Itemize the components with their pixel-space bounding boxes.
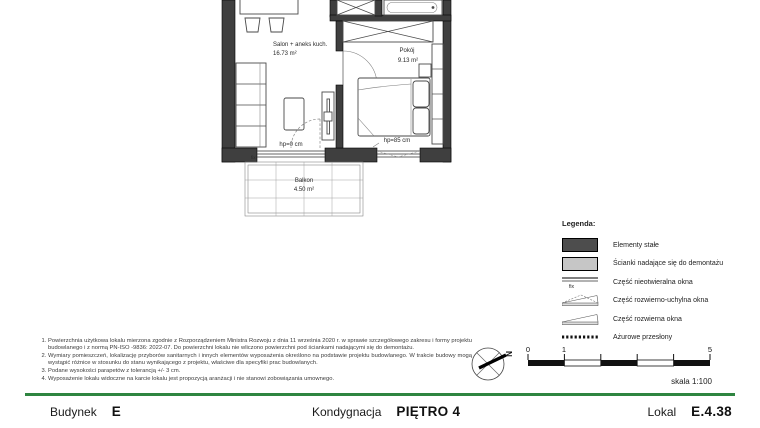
wall-top-divider-1 [330,0,337,17]
note-item: Wyposażenie lokalu widoczne na karcie lo… [48,376,472,383]
pillow [413,108,429,134]
north-arrow: N [463,340,523,390]
turn-window-icon [562,312,600,327]
closet-right [432,44,443,144]
bathtub [384,0,442,15]
wall-interior-lower [336,85,343,148]
balkon-label: Balkon [295,178,313,184]
legend-title: Legenda: [562,219,757,228]
fix-window-label: fix [251,155,256,160]
balkon-area: 4.50 m² [294,187,314,193]
notes-list: Powierzchnia użytkowa lokalu mierzona zg… [36,338,472,384]
pillow [413,81,429,107]
svg-text:fix: fix [569,284,575,290]
building-label: Budynek [50,405,97,419]
solid-wall-swatch [562,238,598,252]
top-fixtures [337,0,442,15]
scale-tick-5: 5 [708,345,712,354]
hp-bedroom-label: hp=85 cm [384,138,411,144]
floor-plan-drawing: Salon + aneks kuch. 16.73 m² Pokój 9.13 … [210,0,480,230]
unit-label: Lokal [647,405,676,419]
legend-item-fixed-window: fix Część nieotwieralna okna [562,273,757,292]
note-item: Wymiary pomieszczeń, lokalizację przybor… [48,353,472,367]
wardrobe-large [343,21,433,42]
scale-caption: skala 1:100 [671,377,712,386]
note-item: Podane wysokości parapetów z tolerancją … [48,368,472,375]
salon-label: Salon + aneks kuch. [273,42,328,48]
wall-top-horizontal [330,15,451,21]
bed [358,78,430,136]
tilt-turn-window-icon [562,293,600,308]
building-value: E [112,404,121,419]
tv-stand [322,92,334,140]
wall-interior-upper [336,21,343,51]
coffee-table [284,98,304,130]
pokoj-label: Pokój [399,48,414,54]
wall-left [222,0,235,162]
shelf-unit [236,63,266,147]
bedroom-window [377,151,420,157]
wall-top-divider-2 [375,0,382,16]
salon-furniture [236,0,334,147]
wall-right [443,0,451,162]
legend-panel: Legenda: Elementy stałe Ścianki nadające… [562,219,757,347]
footer-building: Budynek E [50,404,121,419]
salon-area: 16.73 m² [273,51,297,57]
hp-balcony-label: hp=0 cm [279,142,302,148]
north-label: N [504,351,513,357]
openwork-screen-icon [562,330,600,345]
scale-tick-0: 0 [526,345,530,354]
scale-tick-1: 1 [562,345,566,354]
footer-unit: Lokal E.4.38 [647,404,732,419]
legend-item-tilt-turn-window: Część rozwierno-uchylna okna [562,292,757,311]
floor-label: Kondygnacja [312,405,381,419]
chair-icon [245,18,260,32]
scale-bar: 0 1 5 skala 1:100 [518,344,728,390]
unit-value: E.4.38 [691,404,732,419]
wall-bottom-middle [325,148,377,162]
chair-icon [269,18,284,32]
footer-divider [25,393,735,396]
wardrobe-small [337,0,375,15]
dining-table [240,0,298,14]
floor-value: PIĘTRO 4 [396,404,460,419]
pokoj-furniture [343,21,443,144]
legend-item-solid-walls: Elementy stałe [562,236,757,255]
pokoj-area: 9.13 m² [398,58,418,64]
removable-wall-swatch [562,257,598,271]
fixed-window-icon: fix [562,275,600,290]
legend-item-removable-walls: Ścianki nadające się do demontażu [562,255,757,274]
footer-floor: Kondygnacja PIĘTRO 4 [312,404,460,419]
legend-item-turn-window: Część rozwierna okna [562,310,757,329]
note-item: Powierzchnia użytkowa lokalu mierzona zg… [48,338,472,352]
wall-bottom-right [420,148,451,162]
nightstand [419,64,431,77]
